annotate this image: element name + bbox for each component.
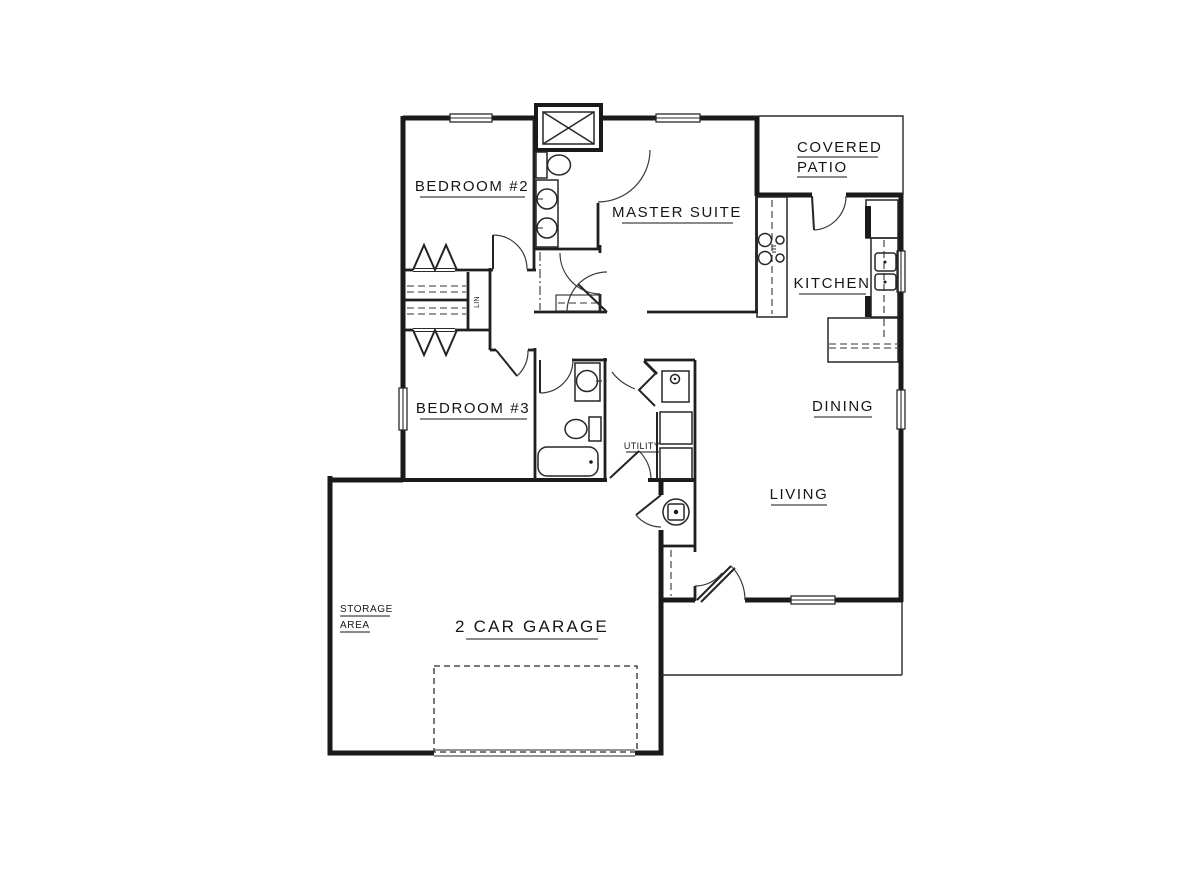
laundry-sink xyxy=(662,371,689,402)
patio-kitchen-door xyxy=(812,196,846,230)
bedroom2-door xyxy=(493,235,527,269)
hall-bath-pedestal-sink xyxy=(575,363,602,401)
room-labels: BEDROOM #2 MASTER SUITE COVERED PATIO KI… xyxy=(340,139,882,639)
utility-doors xyxy=(612,372,655,406)
bedroom3-door xyxy=(496,350,528,376)
water-heater-closet-door xyxy=(636,495,661,527)
water-heater xyxy=(663,499,689,525)
closet-bifold-doors-bedroom3 xyxy=(413,329,457,356)
garage-hall-door xyxy=(610,451,651,478)
kitchen-label: KITCHEN xyxy=(793,275,870,292)
shower xyxy=(536,105,601,150)
utility-label: UTILITY xyxy=(624,441,660,451)
range-cooktop xyxy=(759,234,785,265)
hall-bath-door xyxy=(540,360,573,393)
walk-in-closet-rod xyxy=(540,252,600,311)
garage-overhead-door xyxy=(434,666,637,756)
master-toilet xyxy=(536,152,571,178)
master-bath-door xyxy=(598,150,650,202)
covered-patio-label-line2: PATIO xyxy=(797,159,848,176)
bedroom3-window xyxy=(399,388,407,430)
living-window xyxy=(791,596,835,604)
dining-label: DINING xyxy=(812,398,874,415)
linen-closet-label: LIN xyxy=(474,296,481,308)
front-porch-outline xyxy=(661,602,902,675)
master-suite-label: MASTER SUITE xyxy=(612,204,742,221)
kitchen-double-sink xyxy=(875,253,896,290)
floor-plan-page: BEDROOM #2 MASTER SUITE COVERED PATIO KI… xyxy=(0,0,1200,895)
master-suite-door xyxy=(567,272,607,312)
covered-patio-label-line1: COVERED xyxy=(797,139,882,156)
floor-plan-svg: BEDROOM #2 MASTER SUITE COVERED PATIO KI… xyxy=(0,0,1200,895)
washer xyxy=(660,412,692,444)
master-window xyxy=(656,114,700,122)
bedroom2-window xyxy=(450,114,492,122)
dining-window xyxy=(897,390,905,429)
front-entry-door xyxy=(697,566,745,602)
storage-area-label-line1: STORAGE xyxy=(340,604,393,615)
dryer xyxy=(660,448,692,479)
hall-bath-toilet xyxy=(565,417,601,441)
closet-bifold-doors-bedroom2 xyxy=(413,245,457,272)
garage-label: 2 CAR GARAGE xyxy=(455,617,609,636)
living-label: LIVING xyxy=(770,486,829,503)
storage-area-label-line2: AREA xyxy=(340,620,370,631)
bedroom3-label: BEDROOM #3 xyxy=(416,400,530,417)
bedroom2-label: BEDROOM #2 xyxy=(415,178,529,195)
refrigerator xyxy=(865,200,898,238)
double-vanity-sinks xyxy=(536,180,558,247)
bathtub xyxy=(538,447,598,476)
